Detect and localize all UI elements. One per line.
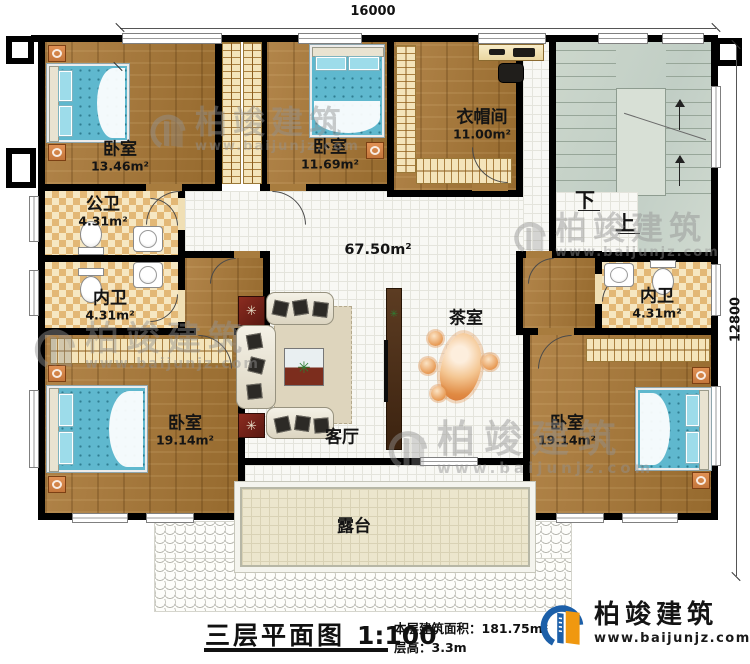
brand-logo-icon xyxy=(538,596,586,652)
nightstand-icon xyxy=(48,476,66,493)
room-name: 茶室 xyxy=(449,309,483,328)
terrace-door xyxy=(420,457,478,466)
door-vestibule-left xyxy=(234,251,260,258)
side-table-icon: ✳ xyxy=(238,413,265,438)
stair-flight-left xyxy=(556,50,616,190)
wall-bump-out xyxy=(714,38,742,66)
door-bedroom-bottom-right xyxy=(538,328,574,335)
room-name: 内卫 xyxy=(632,287,681,306)
nightstand-icon xyxy=(48,144,66,161)
window xyxy=(662,33,704,44)
dimension-right: 12800 xyxy=(729,288,744,352)
stairs-down-line xyxy=(578,210,600,211)
window xyxy=(711,86,721,168)
dressing-table-icon xyxy=(478,44,544,61)
wardrobe-icon xyxy=(222,42,241,184)
stairs-down-label: 下 xyxy=(575,189,595,211)
door-cloakroom xyxy=(472,183,508,191)
tea-room-label: 茶室 xyxy=(449,309,483,328)
coffee-table-icon: ✳ xyxy=(284,348,324,386)
room-area: 19.14m² xyxy=(156,434,214,448)
room-name: 客厅 xyxy=(325,428,359,447)
bed-icon xyxy=(310,45,384,137)
window xyxy=(478,33,546,44)
room-name: 卧室 xyxy=(156,414,214,433)
sink-icon xyxy=(604,263,634,287)
room-label-public-bathroom: 公卫 4.31m² xyxy=(78,195,127,228)
tea-stool-icon xyxy=(431,386,446,401)
window xyxy=(122,33,222,44)
brand-name: 柏竣建筑 xyxy=(594,602,750,628)
brand-url: www.baijunjz.com xyxy=(594,631,750,646)
wardrobe-icon xyxy=(243,42,262,184)
room-name: 露台 xyxy=(337,517,371,536)
toilet-tank-icon xyxy=(78,268,104,276)
bed-icon xyxy=(47,64,129,142)
stair-arrow-down-icon xyxy=(674,150,685,188)
room-area: 11.00m² xyxy=(453,128,511,142)
window xyxy=(146,513,194,523)
sink-icon xyxy=(133,226,163,252)
window xyxy=(72,513,128,523)
nightstand-icon xyxy=(692,472,710,489)
window xyxy=(29,390,39,468)
door-bedroom-bottom-left xyxy=(196,328,234,335)
dimension-line-top xyxy=(120,28,716,29)
room-name: 衣帽间 xyxy=(453,108,511,127)
room-label-inner-bathroom-right: 内卫 4.31m² xyxy=(632,287,681,320)
floor-height-label: 层高： xyxy=(394,640,432,655)
door-inner-bathroom-right xyxy=(595,274,602,304)
wall-segment xyxy=(238,458,420,465)
nightstand-icon xyxy=(48,365,66,382)
door-inner-bathroom-left xyxy=(178,290,185,322)
wall-bump-out xyxy=(6,148,36,188)
room-area: 19.14m² xyxy=(538,434,596,448)
room-name: 内卫 xyxy=(85,289,134,308)
brand-logo: 柏竣建筑 www.baijunjz.com xyxy=(538,596,750,652)
sofa-icon xyxy=(266,407,334,439)
stair-landing xyxy=(616,88,666,196)
stair-arrow-up-icon xyxy=(674,94,685,132)
door-bedroom-top-left xyxy=(146,184,182,191)
bed-icon xyxy=(47,386,147,472)
toilet-tank-icon xyxy=(650,260,676,268)
side-table-icon: ✳ xyxy=(238,296,265,326)
sink-icon xyxy=(133,262,163,288)
hall-area-label: 67.50m² xyxy=(344,242,411,258)
bed-icon xyxy=(636,388,711,470)
room-label-bedroom-top-left: 卧室 13.46m² xyxy=(91,140,149,173)
wardrobe-icon xyxy=(396,45,416,173)
room-label-inner-bathroom-left: 内卫 4.31m² xyxy=(85,289,134,322)
plant-icon: ✳ xyxy=(388,310,400,320)
window xyxy=(598,33,648,44)
tea-stool-icon xyxy=(482,354,498,370)
door-bedroom-top-middle xyxy=(270,184,306,191)
wall-bump-out xyxy=(6,36,34,64)
toilet-tank-icon xyxy=(78,247,104,255)
stair-flight-right xyxy=(666,50,711,200)
nightstand-icon xyxy=(48,45,66,62)
room-area: 4.31m² xyxy=(85,309,134,323)
wardrobe-icon xyxy=(586,338,710,362)
terrace xyxy=(240,487,530,567)
room-name: 卧室 xyxy=(91,140,149,159)
wall-segment xyxy=(478,458,530,465)
room-name: 卧室 xyxy=(301,138,359,157)
door-vestibule-right xyxy=(526,251,552,258)
title-underline xyxy=(204,648,388,652)
sofa-icon xyxy=(236,325,276,409)
room-area: 11.69m² xyxy=(301,158,359,172)
floor-area-label: 本层建筑面积： xyxy=(394,621,482,636)
stairs-up-label: 上 xyxy=(615,212,635,234)
plan-info: 本层建筑面积：181.75m² 层高：3.3m xyxy=(394,619,548,658)
floor-plan-canvas: ✳ ✳ ✳ ✳ 卧室 13.46m² 卧室 11.69m² 衣帽间 11.00m… xyxy=(0,0,750,664)
window xyxy=(711,264,721,316)
nightstand-icon xyxy=(692,367,710,384)
corridor-floor xyxy=(523,42,549,251)
room-label-bedroom-top-middle: 卧室 11.69m² xyxy=(301,138,359,171)
floor-height-value: 3.3m xyxy=(432,640,467,655)
room-label-bedroom-bottom-right: 卧室 19.14m² xyxy=(538,414,596,447)
room-label-cloakroom: 衣帽间 11.00m² xyxy=(453,108,511,141)
stairs-up-line xyxy=(618,233,640,234)
terrace-label: 露台 xyxy=(337,517,371,536)
window xyxy=(29,270,39,316)
tv-icon xyxy=(384,340,388,402)
room-name: 公卫 xyxy=(78,195,127,214)
plan-title-text: 三层平面图 xyxy=(205,616,345,652)
window xyxy=(711,386,721,466)
tea-stool-icon xyxy=(420,358,436,374)
window xyxy=(298,33,362,44)
chair-icon xyxy=(498,63,524,83)
room-area: 13.46m² xyxy=(91,160,149,174)
room-name: 卧室 xyxy=(538,414,596,433)
living-room-label: 客厅 xyxy=(325,428,359,447)
room-label-bedroom-bottom-left: 卧室 19.14m² xyxy=(156,414,214,447)
window xyxy=(622,513,678,523)
window xyxy=(556,513,604,523)
dimension-top: 16000 xyxy=(340,4,406,19)
tea-stool-icon xyxy=(428,331,443,346)
room-area: 4.31m² xyxy=(78,215,127,229)
sofa-icon xyxy=(266,292,334,325)
window xyxy=(29,196,39,242)
terrace-walkway xyxy=(245,465,530,487)
nightstand-icon xyxy=(366,142,384,159)
room-area: 4.31m² xyxy=(632,307,681,321)
